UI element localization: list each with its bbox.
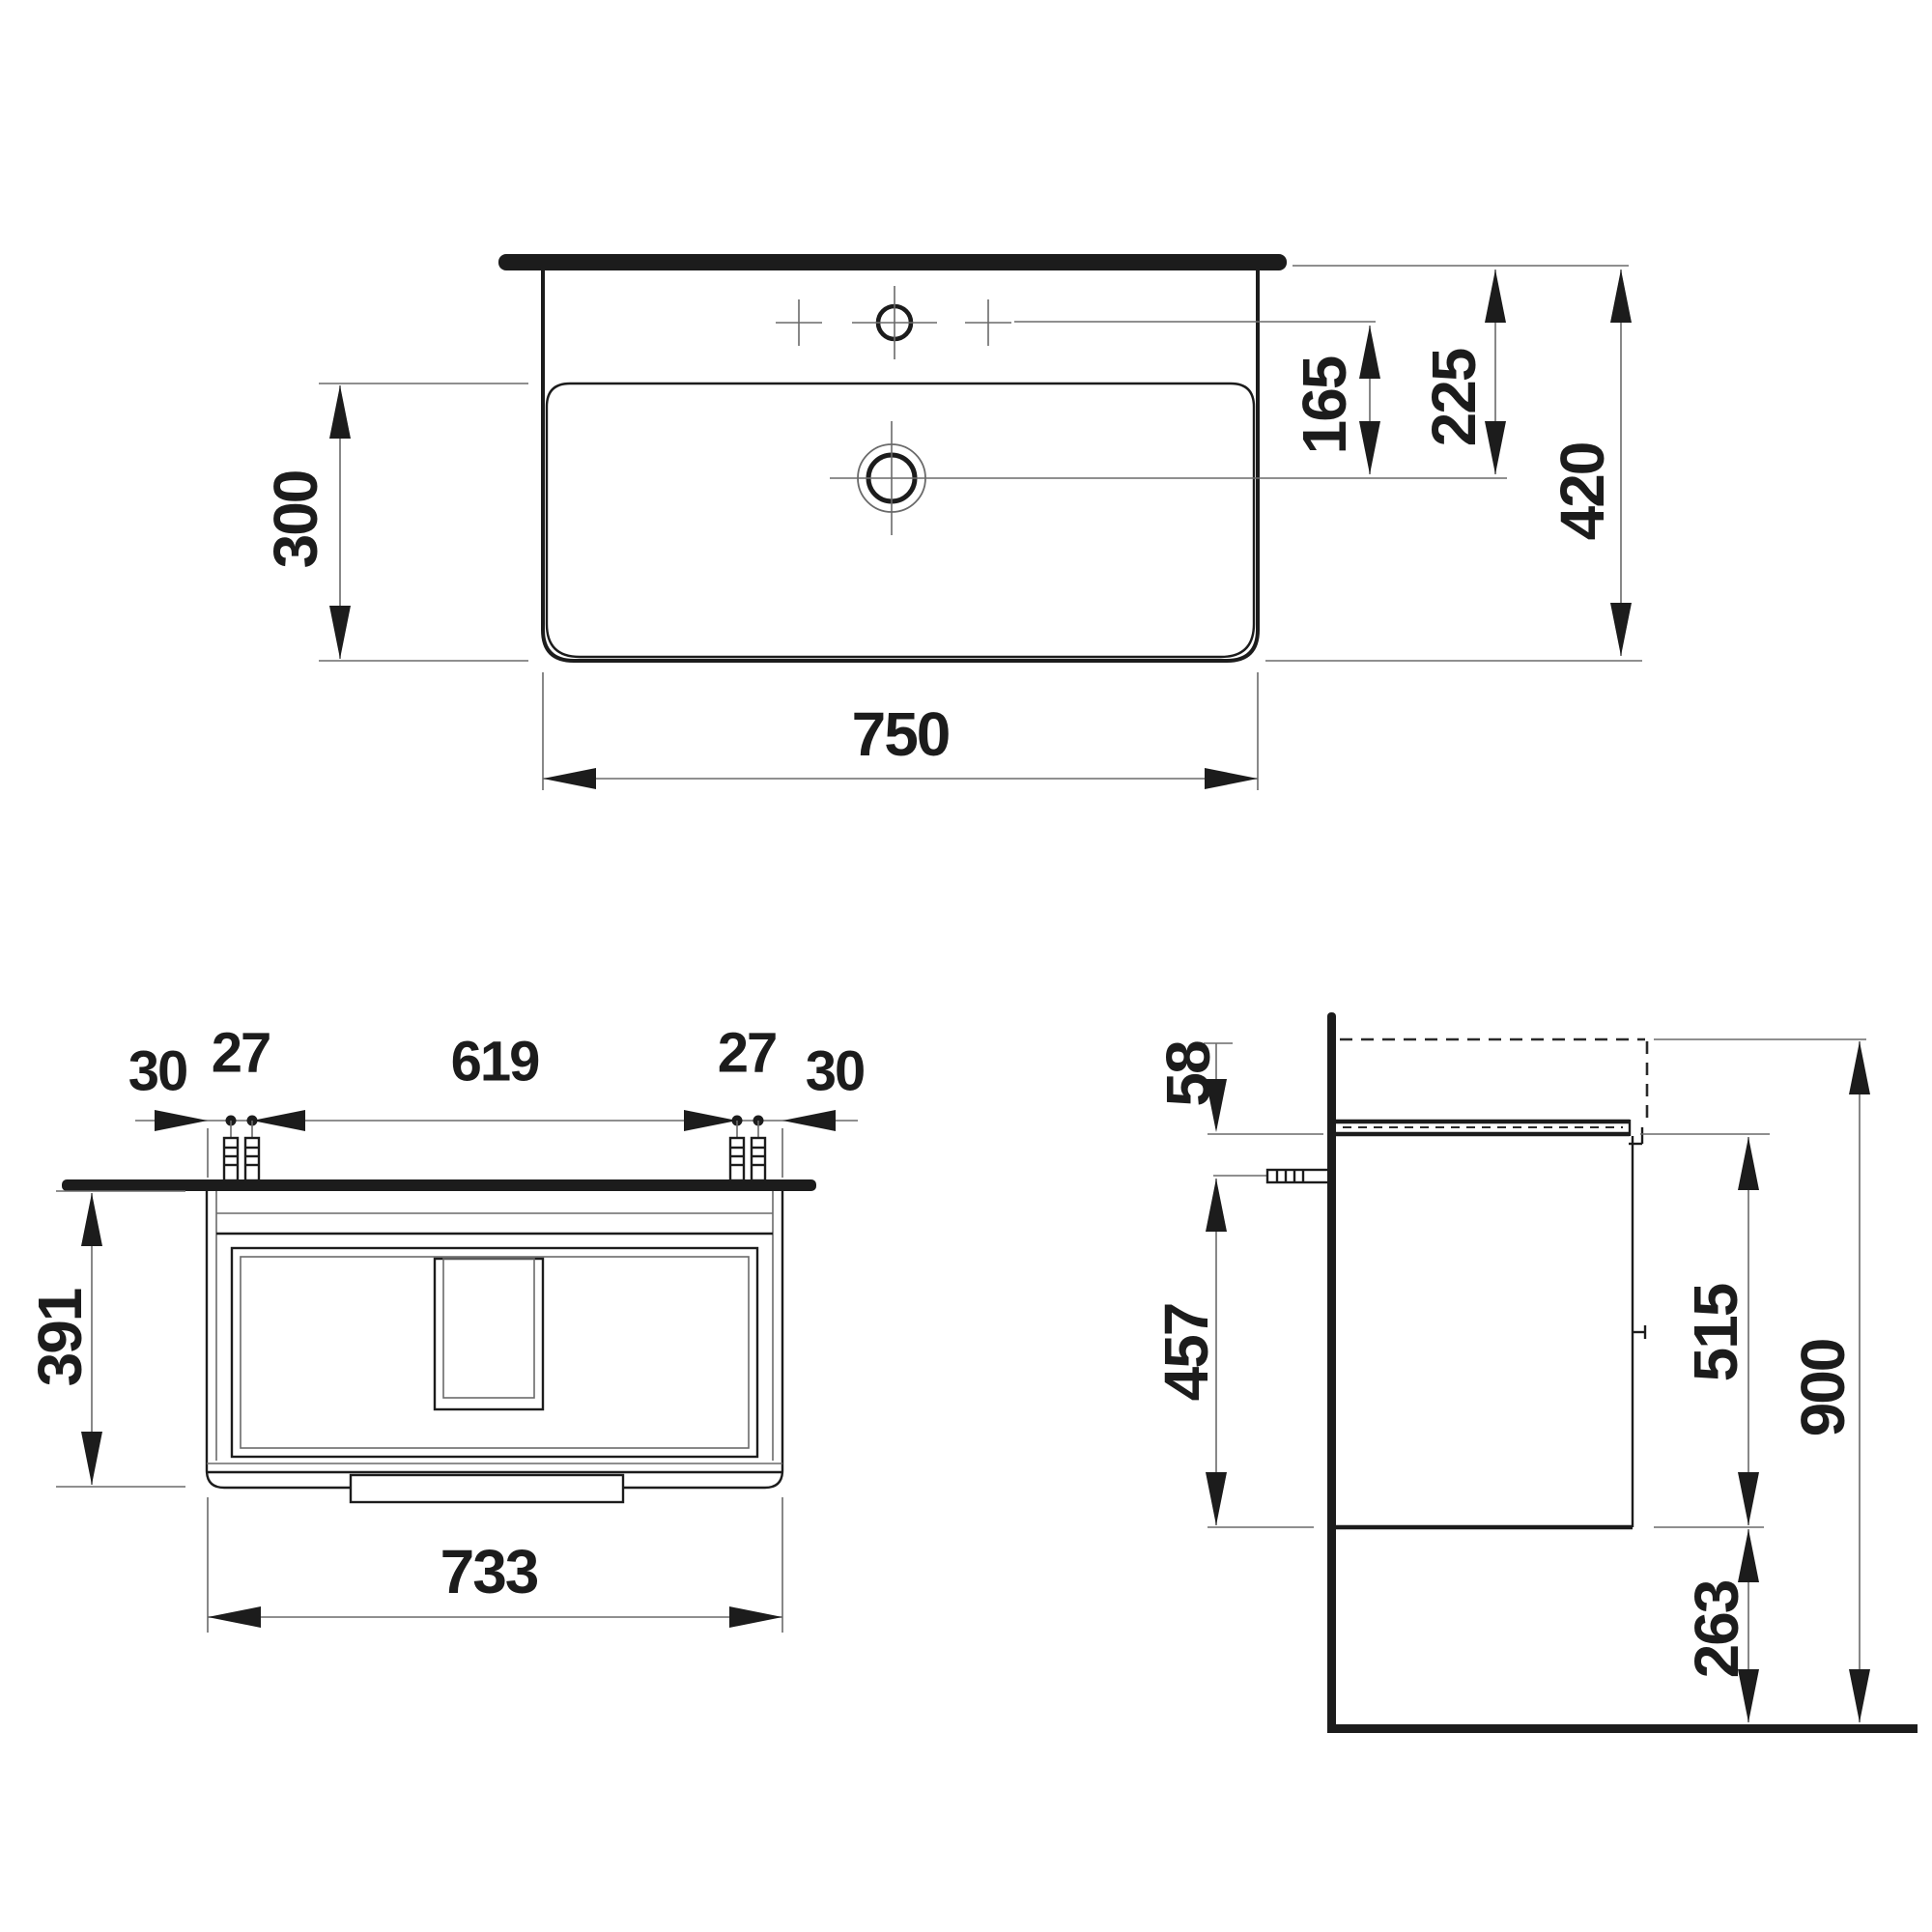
side-view: 58 457 515 263 [1151, 1012, 1918, 1733]
dim-gap-right-label: 27 [718, 1022, 777, 1085]
dim-side-cabinet-height-label: 515 [1681, 1284, 1750, 1381]
tap-hole-marker-right [965, 299, 1011, 346]
dim-floor-clearance-label: 263 [1682, 1580, 1751, 1678]
dim-cabinet-width: 733 [208, 1497, 782, 1633]
cabinet-outline [207, 1191, 782, 1488]
washbasin-slab-front [62, 1179, 816, 1191]
handle-cutout-outer [435, 1259, 543, 1409]
dim-faucet-to-drain: 165 [1290, 326, 1380, 474]
technical-drawing-page: 300 750 165 225 [0, 0, 1932, 1932]
drawer-front-inner [241, 1257, 749, 1448]
front-view: 30 27 619 27 30 [25, 1022, 864, 1634]
dim-edge-right-label: 30 [806, 1040, 865, 1103]
dim-screw-to-bottom-label: 457 [1151, 1304, 1221, 1402]
dimension-drawing: 300 750 165 225 [0, 0, 1932, 1932]
dim-basin-depth: 420 [1265, 270, 1642, 661]
dim-cabinet-height: 391 [25, 1191, 185, 1487]
slab-section [1336, 1120, 1642, 1144]
dim-basin-depth-label: 420 [1548, 443, 1617, 541]
dim-total-height-label: 900 [1788, 1340, 1858, 1437]
floor-line [1327, 1724, 1918, 1733]
dim-top-offset-label: 58 [1153, 1041, 1223, 1107]
bowl-outline [547, 384, 1254, 657]
dim-screw-to-bottom: 457 [1151, 1179, 1314, 1527]
dim-rear-to-drain-label: 225 [1419, 349, 1489, 446]
drawer-joint-tick [1633, 1325, 1645, 1339]
dowel [730, 1121, 744, 1180]
dim-basin-width: 750 [543, 672, 1258, 790]
dim-bowl-depth: 300 [261, 384, 528, 661]
dim-top-offset: 58 [1153, 1041, 1323, 1134]
dim-gap-left-label: 27 [212, 1022, 270, 1085]
tap-hole-marker-left [776, 299, 822, 346]
drawer-front-outer [232, 1248, 757, 1457]
wall-screw [1213, 1170, 1329, 1182]
dim-bowl-depth-label: 300 [261, 471, 330, 569]
dim-dowel-span-label: 619 [451, 1031, 540, 1094]
dowel [752, 1121, 765, 1180]
top-view: 300 750 165 225 [261, 254, 1642, 790]
back-rail [498, 254, 1287, 270]
dim-cabinet-height-label: 391 [25, 1289, 95, 1386]
basin-outline [543, 267, 1258, 661]
dim-floor-clearance: 263 [1682, 1529, 1759, 1722]
dowel [224, 1121, 238, 1180]
dim-cabinet-width-label: 733 [440, 1537, 538, 1606]
dim-basin-width-label: 750 [852, 699, 950, 769]
wall-line [1327, 1012, 1336, 1733]
dowel [245, 1121, 259, 1180]
plinth-strip [351, 1475, 623, 1502]
handle-cutout-inner [443, 1259, 534, 1398]
dim-side-cabinet-height: 515 [1640, 1134, 1770, 1527]
dim-faucet-to-drain-label: 165 [1290, 356, 1359, 454]
dim-edge-left-label: 30 [128, 1040, 187, 1103]
